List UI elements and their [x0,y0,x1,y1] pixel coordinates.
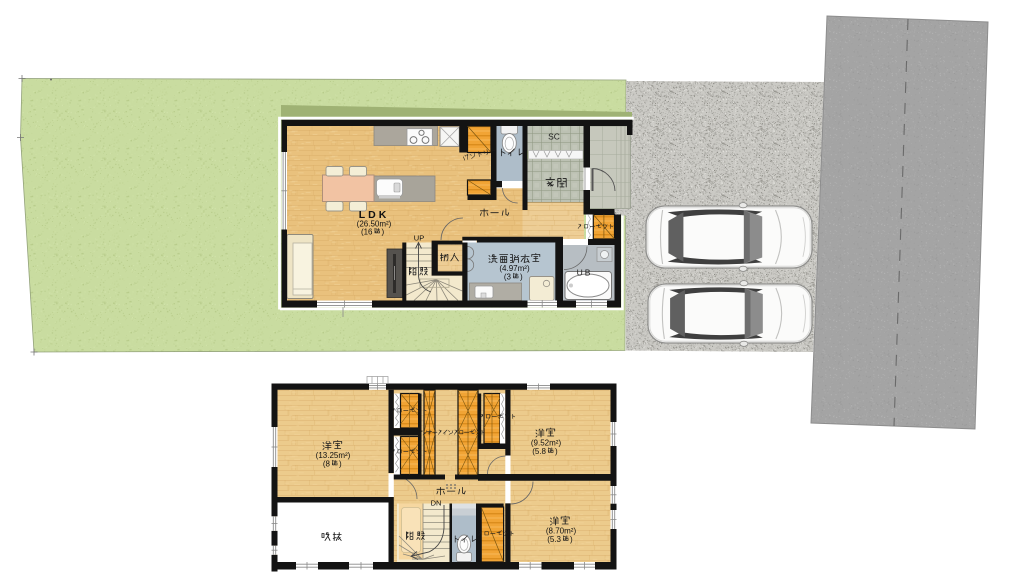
svg-text:(13.25m²): (13.25m²) [316,451,351,460]
svg-text:DN: DN [431,499,442,508]
svg-text:SC: SC [548,132,560,142]
svg-text:(8: (8 [323,460,331,469]
svg-text:(5.8: (5.8 [532,447,546,456]
svg-text:): ) [339,460,342,469]
svg-text:UP: UP [414,234,424,243]
svg-text:): ) [555,447,558,456]
svg-text:(3: (3 [504,273,512,282]
svg-text:): ) [520,273,523,282]
svg-text:): ) [382,228,385,237]
svg-text:UB: UB [577,268,593,278]
svg-text:): ) [570,535,573,544]
svg-text:(16: (16 [361,228,373,237]
svg-text:(5.3: (5.3 [547,535,561,544]
